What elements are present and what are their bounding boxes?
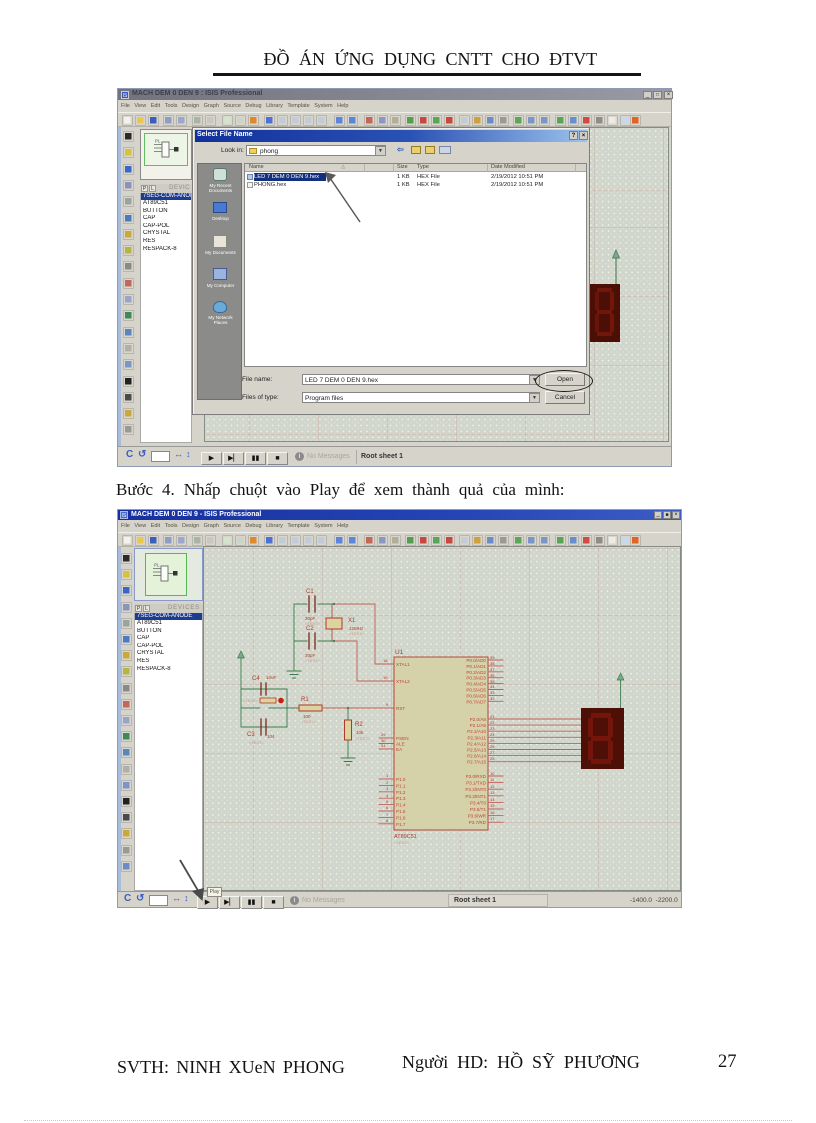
svg-text:24: 24 — [490, 732, 495, 737]
svg-text:16: 16 — [490, 810, 495, 815]
svg-text:32: 32 — [490, 696, 495, 701]
svg-text:P1.7: P1.7 — [396, 822, 406, 827]
svg-text:P3.2/INT0: P3.2/INT0 — [465, 787, 486, 792]
svg-text:<TEXT>: <TEXT> — [355, 736, 371, 741]
svg-text:<TEXT>: <TEXT> — [305, 658, 321, 663]
svg-text:P3.1/TXD: P3.1/TXD — [466, 781, 487, 786]
svg-text:C3: C3 — [247, 732, 255, 738]
svg-text:10k: 10k — [356, 730, 364, 735]
svg-text:RST: RST — [396, 706, 405, 711]
svg-text:19: 19 — [383, 675, 388, 680]
svg-text:P1.2: P1.2 — [396, 790, 406, 795]
svg-text:23: 23 — [490, 726, 495, 731]
svg-text:P3.7/RD: P3.7/RD — [469, 820, 487, 825]
svg-text:21: 21 — [490, 714, 495, 719]
svg-text:<TEXT>: <TEXT> — [249, 740, 265, 745]
svg-text:29: 29 — [381, 732, 386, 737]
svg-text:PL: PL — [154, 563, 160, 568]
svg-text:7: 7 — [386, 812, 389, 817]
svg-text:C2: C2 — [306, 626, 314, 632]
svg-text:<TEXT>: <TEXT> — [349, 631, 365, 636]
svg-text:P1.0: P1.0 — [396, 777, 406, 782]
svg-text:C4: C4 — [252, 676, 260, 682]
svg-text:9: 9 — [386, 702, 389, 707]
svg-text:37: 37 — [490, 667, 495, 672]
svg-text:12: 12 — [490, 784, 495, 789]
svg-text:P1.1: P1.1 — [396, 783, 406, 788]
svg-text:P0.2/AD2: P0.2/AD2 — [466, 670, 486, 675]
svg-text:33: 33 — [490, 690, 495, 695]
svg-text:U1: U1 — [395, 649, 404, 656]
svg-text:P1.6: P1.6 — [396, 815, 406, 820]
svg-text:P3.4/T0: P3.4/T0 — [470, 800, 487, 805]
svg-text:R1: R1 — [301, 697, 309, 703]
svg-text:P3.5/T1: P3.5/T1 — [470, 807, 487, 812]
svg-text:P0.0/AD0: P0.0/AD0 — [466, 658, 486, 663]
svg-text:25: 25 — [490, 738, 495, 743]
svg-text:26: 26 — [490, 744, 495, 749]
svg-text:104: 104 — [267, 734, 275, 739]
svg-text:P1.4: P1.4 — [396, 803, 406, 808]
svg-text:P3.3/INT1: P3.3/INT1 — [465, 794, 486, 799]
svg-text:<TEXT>: <TEXT> — [243, 698, 259, 703]
svg-text:P0.4/AD4: P0.4/AD4 — [466, 682, 486, 687]
svg-text:1: 1 — [386, 773, 389, 778]
svg-text:10uF: 10uF — [266, 675, 277, 680]
svg-text:P2.4/A12: P2.4/A12 — [467, 741, 486, 746]
svg-text:5: 5 — [386, 799, 389, 804]
svg-text:39: 39 — [490, 655, 495, 660]
svg-text:31: 31 — [381, 743, 386, 748]
svg-text:14: 14 — [490, 797, 495, 802]
svg-text:P2.0/A8: P2.0/A8 — [470, 717, 487, 722]
svg-text:38: 38 — [490, 661, 495, 666]
svg-text:4: 4 — [386, 793, 389, 798]
svg-text:34: 34 — [490, 684, 495, 689]
svg-text:X1: X1 — [348, 618, 356, 624]
svg-text:17: 17 — [490, 816, 495, 821]
svg-text:P2.1/A9: P2.1/A9 — [470, 723, 487, 728]
svg-text:P2.5/A13: P2.5/A13 — [467, 748, 486, 753]
svg-text:PL: PL — [155, 139, 161, 144]
svg-text:3: 3 — [386, 786, 389, 791]
svg-text:P0.3/AD3: P0.3/AD3 — [466, 676, 486, 681]
svg-text:27: 27 — [490, 750, 495, 755]
svg-text:22: 22 — [490, 720, 495, 725]
svg-text:EA: EA — [396, 747, 403, 752]
svg-text:C1: C1 — [306, 589, 314, 595]
svg-text:P1.5: P1.5 — [396, 809, 406, 814]
svg-text:XTAL1: XTAL1 — [396, 662, 410, 667]
svg-text:13: 13 — [490, 790, 495, 795]
svg-text:P0.5/AD5: P0.5/AD5 — [466, 688, 486, 693]
svg-text:P2.2/A10: P2.2/A10 — [467, 729, 486, 734]
svg-text:P0.6/AD6: P0.6/AD6 — [466, 693, 486, 698]
svg-text:P2.3/A11: P2.3/A11 — [467, 735, 486, 740]
svg-text:P3.0/RXD: P3.0/RXD — [466, 774, 487, 779]
svg-text:15: 15 — [490, 803, 495, 808]
svg-text:18: 18 — [383, 658, 388, 663]
svg-text:36: 36 — [490, 673, 495, 678]
svg-text:<TEXT>: <TEXT> — [301, 719, 317, 724]
svg-text:XTAL2: XTAL2 — [396, 679, 410, 684]
svg-text:R2: R2 — [355, 722, 363, 728]
svg-text:2: 2 — [386, 780, 389, 785]
svg-text:8: 8 — [386, 818, 389, 823]
svg-text:ALE: ALE — [396, 742, 405, 747]
svg-text:<TEXT>: <TEXT> — [394, 840, 410, 845]
svg-text:PSEN: PSEN — [396, 736, 409, 741]
svg-text:10: 10 — [490, 771, 495, 776]
svg-text:P3.6/WR: P3.6/WR — [468, 814, 487, 819]
svg-text:P1.3: P1.3 — [396, 796, 406, 801]
svg-text:11: 11 — [490, 777, 495, 782]
svg-text:P2.6/A14: P2.6/A14 — [467, 754, 486, 759]
svg-text:P0.7/AD7: P0.7/AD7 — [466, 699, 486, 704]
svg-text:P0.1/AD1: P0.1/AD1 — [466, 664, 486, 669]
svg-text:28: 28 — [490, 756, 495, 761]
svg-text:P2.7/A15: P2.7/A15 — [467, 760, 486, 765]
svg-text:6: 6 — [386, 805, 389, 810]
